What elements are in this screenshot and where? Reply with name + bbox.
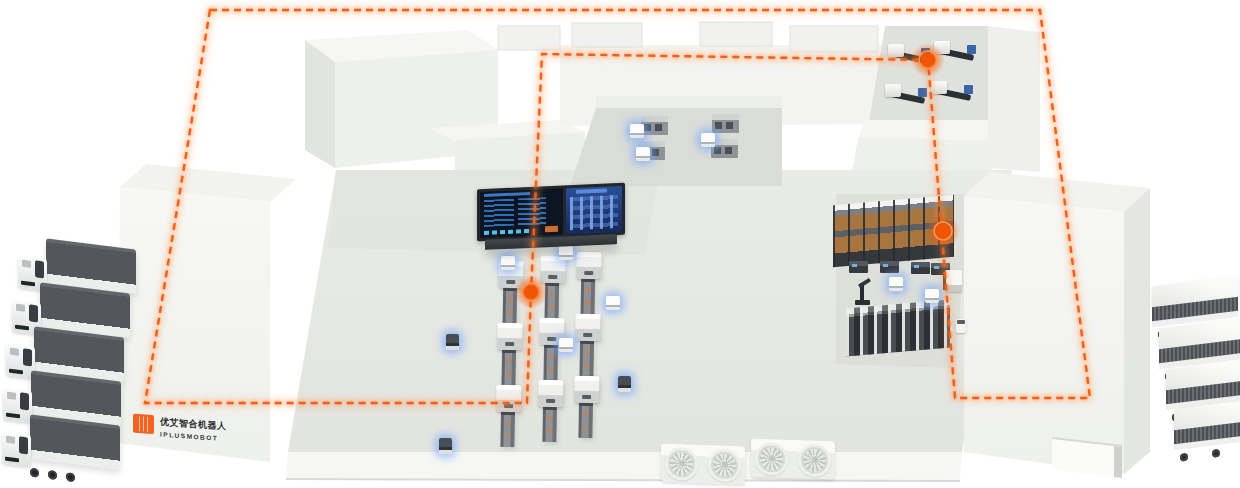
roof-slab [790, 26, 878, 52]
truck-side-window [10, 348, 19, 356]
production-machine [538, 380, 563, 407]
rack-shelves [833, 195, 954, 268]
production-machine [574, 376, 599, 403]
hvac-unit [751, 439, 835, 480]
right-back-wall [988, 26, 1040, 172]
pallet-shuttle-bot [849, 261, 868, 273]
data-rows-column [518, 197, 546, 225]
dashboard-display [477, 186, 625, 247]
logo-rack-icon [133, 414, 154, 434]
machine-head [888, 44, 904, 57]
schematic-grid [570, 195, 618, 230]
machine-head [931, 81, 947, 94]
agv-robot [925, 289, 939, 303]
conveyor-segment [503, 288, 518, 323]
equipment-cabinet [641, 116, 668, 135]
production-machine [575, 314, 600, 341]
panel-title-bar [576, 189, 607, 194]
truck-windshield [35, 260, 44, 278]
conveyor-item [548, 429, 552, 433]
conveyor-item [586, 288, 590, 292]
arm-boom [858, 278, 871, 288]
production-machine [496, 385, 521, 412]
truck-side-window [16, 304, 25, 312]
conveyor-item [585, 350, 589, 354]
conveyor-segment [542, 407, 557, 442]
production-line [495, 261, 524, 447]
hvac-unit [661, 444, 745, 485]
production-line [573, 252, 602, 438]
storage-rack-top [833, 195, 954, 268]
agv-robot [559, 246, 573, 260]
small-mobile-robot [956, 319, 966, 333]
conveyor-item [550, 292, 554, 296]
truck-grille [6, 413, 20, 419]
pallet-shuttle-bot [911, 262, 930, 274]
conveyor-item [550, 305, 554, 309]
truck-windshield [19, 436, 28, 454]
forklift-robot [945, 270, 962, 292]
machine-head [934, 41, 950, 54]
truck-grille [5, 457, 19, 463]
conveyor-item [549, 354, 553, 358]
factory-scene: 优艾智合机器人 IPLUSMOBOT [0, 0, 1240, 488]
dock-truck-left [0, 420, 120, 472]
hvac-fan-icon [665, 446, 698, 480]
hvac-fan-icon [755, 441, 788, 475]
hvac-fan-icon [708, 448, 741, 482]
production-machine [497, 323, 522, 350]
truck-cargo-box [30, 414, 120, 469]
conveyor-item [585, 363, 589, 367]
storage-rack-bottom [846, 299, 950, 356]
right-building-front [964, 196, 1124, 474]
roof-slab [498, 26, 560, 50]
status-blocks-cyan [484, 229, 532, 235]
conveyor-item [507, 359, 511, 363]
truck-grille [21, 281, 35, 287]
conveyor-item [508, 310, 512, 314]
right-building-side [1124, 188, 1150, 474]
machining-station [934, 41, 976, 67]
production-machine [576, 252, 601, 279]
machining-station [885, 84, 927, 110]
main-floor-front-face [286, 452, 962, 480]
machine-control-box [921, 48, 930, 57]
truck-grille [15, 325, 29, 331]
machine-control-box [918, 88, 927, 97]
machining-station [931, 81, 973, 107]
truck-windshield [20, 392, 29, 410]
conveyor-segment [501, 350, 516, 385]
agv-robot [701, 133, 715, 147]
conveyor-item [584, 425, 588, 429]
equipment-cabinet [711, 139, 738, 158]
back-tower-side [305, 40, 335, 168]
conveyor-item [586, 301, 590, 305]
agv-robot-loaded [618, 376, 631, 392]
roof-slab [572, 23, 642, 47]
dock-truck-right [1174, 404, 1240, 452]
truck-cab [2, 431, 31, 467]
machine-head [885, 84, 901, 97]
conveyor-item [548, 416, 552, 420]
conveyor-item [584, 412, 588, 416]
conveyor-segment [545, 283, 560, 318]
truck-side-window [22, 260, 31, 268]
conveyor-segment [543, 345, 558, 380]
truck-cab [3, 387, 32, 423]
agv-robot [501, 256, 515, 270]
agv-robot [559, 338, 573, 352]
cabinet-room-floor [570, 108, 782, 186]
conveyor-segment [500, 412, 515, 447]
pallet-shuttle-bot [880, 261, 899, 273]
agv-robot-loaded [446, 334, 459, 350]
truck-side-window [6, 436, 15, 444]
status-block-orange [545, 226, 558, 233]
agv-robot [636, 147, 650, 161]
truck-windshield [23, 348, 32, 366]
truck-grille [9, 369, 23, 375]
conveyor-item [507, 372, 511, 376]
machine-control-box [967, 45, 976, 54]
hvac-fan-icon [798, 443, 831, 477]
conveyor-segment [579, 341, 594, 376]
roof-slab [700, 22, 772, 46]
data-rows-column [484, 199, 514, 227]
conveyor-segment [578, 403, 593, 438]
production-data-panel [480, 188, 563, 238]
conveyor-item [549, 367, 553, 371]
panel-header-bar [484, 192, 530, 197]
conveyor-item [506, 421, 510, 425]
agv-robot [630, 124, 644, 138]
equipment-cabinet [712, 114, 739, 133]
agv-robot [889, 277, 903, 291]
agv-robot-loaded [439, 438, 452, 454]
conveyor-segment [581, 279, 596, 314]
conveyor-item [508, 297, 512, 301]
truck-side-window [7, 392, 16, 400]
agv-robot [606, 296, 620, 310]
door-recess-shadow [1114, 445, 1122, 478]
conveyor-item [506, 434, 510, 438]
rack-columns [846, 299, 950, 356]
machine-control-box [964, 85, 973, 94]
machining-station [888, 44, 930, 70]
truck-windshield [29, 304, 38, 322]
logo-text: 优艾智合机器人 IPLUSMOBOT [160, 416, 227, 443]
line-schematic-panel [566, 186, 622, 234]
dashboard-screen [477, 183, 625, 241]
robot-arm [855, 279, 871, 305]
